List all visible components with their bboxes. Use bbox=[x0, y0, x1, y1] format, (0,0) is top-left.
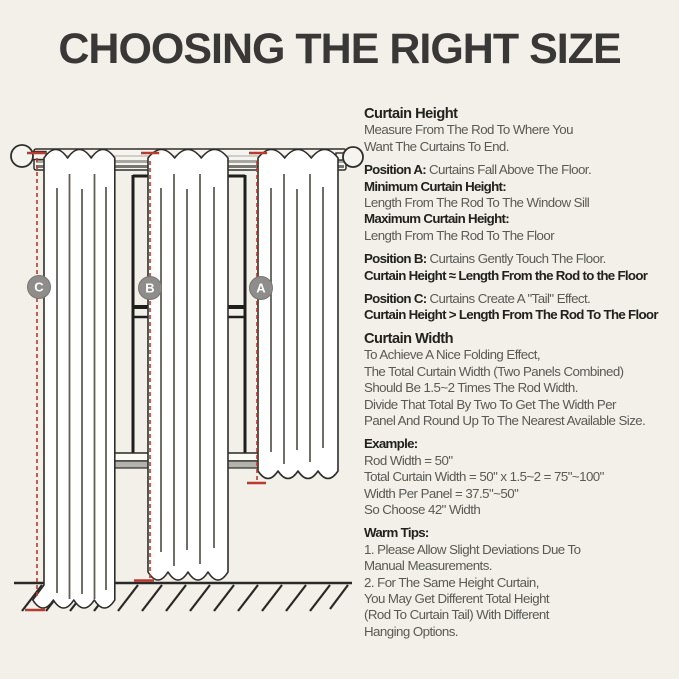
section-position-b: Position B: Curtains Gently Touch The Fl… bbox=[364, 251, 676, 284]
text-line: Example: bbox=[364, 436, 676, 452]
text-run: Curtain Height > Length From The Rod To … bbox=[364, 307, 658, 322]
text-run: Manual Measurements. bbox=[364, 558, 492, 573]
text-run: Panel And Round Up To The Nearest Availa… bbox=[364, 413, 645, 428]
section-position-a: Position A: Curtains Fall Above The Floo… bbox=[364, 162, 676, 244]
curtain-panel-c bbox=[33, 150, 115, 609]
text-run: Curtains Fall Above The Floor. bbox=[429, 162, 591, 177]
finial-right bbox=[343, 147, 363, 167]
text-run: Hanging Options. bbox=[364, 624, 458, 639]
section-example: Example:Rod Width = 50"Total Curtain Wid… bbox=[364, 436, 676, 518]
text-line: Want The Curtains To End. bbox=[364, 139, 676, 155]
text-run: Example: bbox=[364, 436, 418, 451]
text-line: To Achieve A Nice Folding Effect, bbox=[364, 347, 676, 363]
text-line: Rod Width = 50" bbox=[364, 453, 676, 469]
section-curtain-width: Curtain WidthTo Achieve A Nice Folding E… bbox=[364, 331, 676, 429]
text-run: Curtain Width bbox=[364, 331, 453, 347]
svg-text:C: C bbox=[34, 280, 44, 295]
section-curtain-height: Curtain HeightMeasure From The Rod To Wh… bbox=[364, 106, 676, 155]
text-run: Should Be 1.5~2 Times The Rod Width. bbox=[364, 380, 578, 395]
text-line: Divide That Total By Two To Get The Widt… bbox=[364, 397, 676, 413]
text-line: Hanging Options. bbox=[364, 624, 676, 640]
text-run: Length From The Rod To The Window Sill bbox=[364, 195, 589, 210]
text-line: Manual Measurements. bbox=[364, 558, 676, 574]
curtain-panel-b bbox=[148, 150, 228, 581]
text-run: (Rod To Curtain Tail) With Different bbox=[364, 607, 549, 622]
svg-text:A: A bbox=[256, 281, 266, 296]
text-run: Position B: bbox=[364, 251, 429, 266]
text-line: Warm Tips: bbox=[364, 525, 676, 541]
text-line: Curtain Width bbox=[364, 331, 676, 347]
text-line: 1. Please Allow Slight Deviations Due To bbox=[364, 542, 676, 558]
text-line: Total Curtain Width = 50" x 1.5~2 = 75"~… bbox=[364, 469, 676, 485]
curtain-panel-a bbox=[258, 150, 338, 479]
text-run: Curtain Height bbox=[364, 106, 458, 122]
text-line: Position B: Curtains Gently Touch The Fl… bbox=[364, 251, 676, 267]
text-run: Maximum Curtain Height: bbox=[364, 211, 509, 226]
text-line: Position A: Curtains Fall Above The Floo… bbox=[364, 162, 676, 178]
text-run: To Achieve A Nice Folding Effect, bbox=[364, 347, 540, 362]
text-run: Width Per Panel = 37.5"~50" bbox=[364, 486, 518, 501]
position-badge-a: A bbox=[250, 277, 273, 300]
text-run: Minimum Curtain Height: bbox=[364, 179, 506, 194]
text-line: Maximum Curtain Height: bbox=[364, 211, 676, 227]
text-run: Rod Width = 50" bbox=[364, 453, 453, 468]
text-line: Curtain Height bbox=[364, 106, 676, 122]
text-run: Total Curtain Width = 50" x 1.5~2 = 75"~… bbox=[364, 469, 604, 484]
section-warm-tips: Warm Tips:1. Please Allow Slight Deviati… bbox=[364, 525, 676, 640]
text-line: So Choose 42" Width bbox=[364, 502, 676, 518]
section-position-c: Position C: Curtains Create A "Tail" Eff… bbox=[364, 291, 676, 324]
text-line: The Total Curtain Width (Two Panels Comb… bbox=[364, 364, 676, 380]
text-run: Measure From The Rod To Where You bbox=[364, 122, 573, 137]
svg-text:B: B bbox=[145, 281, 154, 296]
text-run: 2. For The Same Height Curtain, bbox=[364, 575, 539, 590]
text-line: Length From The Rod To The Window Sill bbox=[364, 195, 676, 211]
finial-left bbox=[11, 145, 33, 167]
curtain-size-diagram: C B A bbox=[0, 0, 365, 679]
text-run: Warm Tips: bbox=[364, 525, 429, 540]
text-line: 2. For The Same Height Curtain, bbox=[364, 575, 676, 591]
text-line: Curtain Height ≈ Length From the Rod to … bbox=[364, 268, 676, 284]
text-line: Measure From The Rod To Where You bbox=[364, 122, 676, 138]
text-line: Position C: Curtains Create A "Tail" Eff… bbox=[364, 291, 676, 307]
text-line: Minimum Curtain Height: bbox=[364, 179, 676, 195]
text-run: You May Get Different Total Height bbox=[364, 591, 549, 606]
text-run: Curtains Create A "Tail" Effect. bbox=[429, 291, 590, 306]
text-line: You May Get Different Total Height bbox=[364, 591, 676, 607]
position-badge-b: B bbox=[139, 277, 162, 300]
text-line: Panel And Round Up To The Nearest Availa… bbox=[364, 413, 676, 429]
text-line: Width Per Panel = 37.5"~50" bbox=[364, 486, 676, 502]
instructions-column: Curtain HeightMeasure From The Rod To Wh… bbox=[364, 106, 676, 647]
text-line: (Rod To Curtain Tail) With Different bbox=[364, 607, 676, 623]
text-run: Position A: bbox=[364, 162, 429, 177]
text-run: Curtains Gently Touch The Floor. bbox=[429, 251, 605, 266]
text-run: The Total Curtain Width (Two Panels Comb… bbox=[364, 364, 624, 379]
text-run: So Choose 42" Width bbox=[364, 502, 480, 517]
infographic-page: CHOOSING THE RIGHT SIZE bbox=[0, 0, 679, 679]
position-badge-c: C bbox=[28, 276, 51, 299]
text-line: Should Be 1.5~2 Times The Rod Width. bbox=[364, 380, 676, 396]
text-run: Position C: bbox=[364, 291, 429, 306]
text-run: Length From The Rod To The Floor bbox=[364, 228, 554, 243]
text-run: 1. Please Allow Slight Deviations Due To bbox=[364, 542, 581, 557]
text-run: Divide That Total By Two To Get The Widt… bbox=[364, 397, 616, 412]
text-run: Curtain Height ≈ Length From the Rod to … bbox=[364, 268, 647, 283]
text-line: Curtain Height > Length From The Rod To … bbox=[364, 307, 676, 323]
text-line: Length From The Rod To The Floor bbox=[364, 228, 676, 244]
text-run: Want The Curtains To End. bbox=[364, 139, 509, 154]
